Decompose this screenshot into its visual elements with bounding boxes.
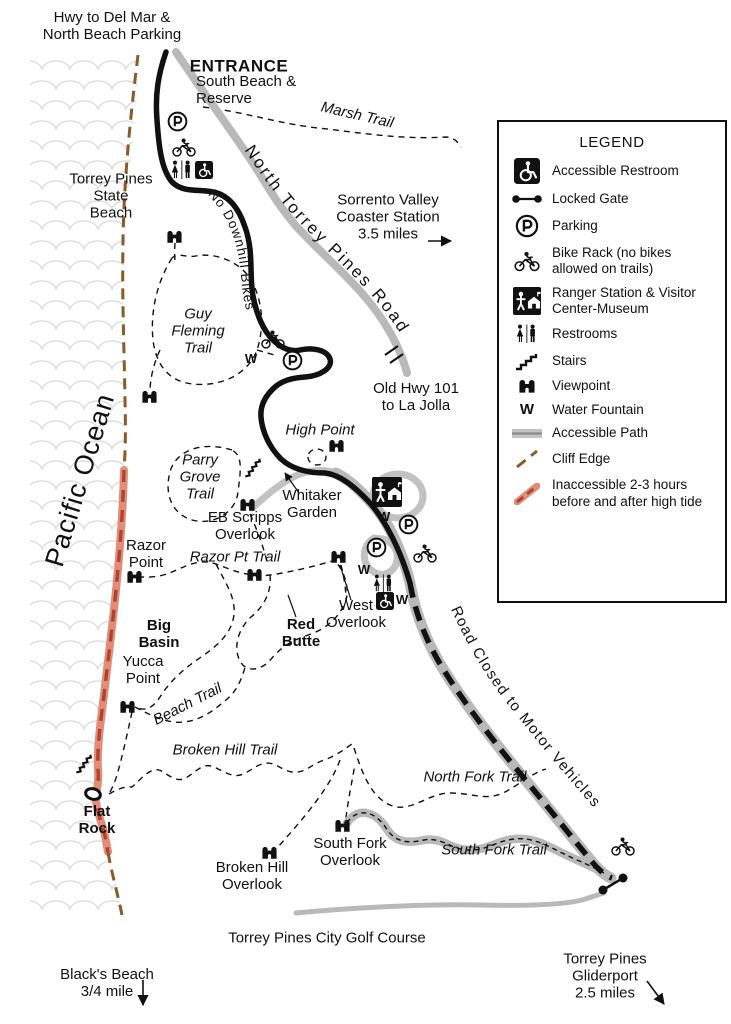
viewpoint-icon (142, 391, 156, 403)
bike-rack-icon (173, 138, 195, 155)
water-fountain-icon: W (378, 509, 391, 524)
legend-row-accessible-path: Accessible Path (509, 425, 719, 441)
label-hwy-del-mar: Hwy to Del Mar & North Beach Parking (43, 10, 181, 44)
stairs-icon (242, 459, 263, 477)
label-north-fork-trail: North Fork Trail (423, 770, 526, 787)
broken-hill-overlook-spur (278, 760, 340, 847)
water-fountain-icon: W (358, 562, 371, 577)
label-broken-hill-trail: Broken Hill Trail (173, 743, 278, 760)
label-broken-hill-overlook: Broken Hill Overlook (216, 860, 289, 894)
legend-label: Accessible Restroom (552, 163, 710, 179)
legend-row-bike-rack: Bike Rack (no bikes allowed on trails) (509, 245, 719, 277)
legend-label: Stairs (552, 353, 710, 369)
south-fork-overlook-spur (346, 764, 355, 818)
legend-row-restrooms: Restrooms (509, 324, 719, 344)
label-gliderport: Torrey Pines Gliderport 2.5 miles (542, 952, 668, 1003)
label-south-fork-overlook: South Fork Overlook (313, 836, 386, 870)
label-old-hwy-101: Old Hwy 101 to La Jolla (373, 381, 459, 415)
label-sorrento-valley: Sorrento Valley Coaster Station 3.5 mile… (336, 193, 439, 244)
label-west-overlook: West Overlook (326, 598, 386, 632)
viewpoint-icon-razor-point (127, 571, 141, 583)
legend-row-ranger-station: Ranger Station & Visitor Center-Museum (509, 285, 719, 317)
legend-row-tide: Inaccessible 2-3 hours before and after … (509, 477, 719, 509)
label-parry-grove-trail: Parry Grove Trail (180, 453, 221, 504)
legend-row-accessible-restroom: Accessible Restroom (509, 158, 719, 184)
viewpoint-icon (518, 378, 536, 394)
label-south-beach: South Beach & Reserve (196, 74, 296, 108)
legend-label: Locked Gate (552, 191, 710, 207)
legend-row-stairs: Stairs (509, 351, 719, 371)
label-flat-rock: Flat Rock (79, 804, 116, 838)
legend-row-cliff-edge: Cliff Edge (509, 448, 719, 470)
label-razor-pt-trail: Razor Pt Trail (190, 550, 281, 567)
viewpoint-icon-high-point (329, 440, 343, 452)
legend-label: Ranger Station & Visitor Center-Museum (552, 285, 710, 317)
guy-fleming-spur-east (257, 350, 278, 356)
legend-row-locked-gate: Locked Gate (509, 191, 719, 207)
legend-label: Viewpoint (552, 378, 710, 394)
label-whitaker-garden: Whitaker Garden (282, 488, 341, 522)
label-yucca-point: Yucca Point (123, 654, 164, 688)
legend-label: Cliff Edge (552, 451, 710, 467)
yucca-to-flat-rock (109, 712, 132, 794)
viewpoint-icon-west-overlook (331, 551, 345, 563)
accessible-restroom-icon (195, 161, 213, 179)
label-golf-course: Torrey Pines City Golf Course (228, 931, 426, 948)
viewpoint-icon (247, 569, 261, 581)
west-overlook-leader (340, 565, 351, 600)
label-red-butte: Red Butte (282, 617, 320, 651)
high-point-loop (308, 449, 326, 465)
label-south-fork-trail: South Fork Trail (441, 843, 547, 860)
ranger-station-icon (513, 287, 541, 315)
legend-label: Parking (552, 218, 710, 234)
legend-label: Inaccessible 2-3 hours before and after … (552, 477, 710, 509)
legend-label: Water Fountain (552, 402, 710, 418)
label-razor-point: Razor Point (126, 538, 166, 572)
legend-label: Accessible Path (552, 425, 710, 441)
bike-rack-icon (512, 250, 542, 273)
water-fountain-icon: W (509, 401, 545, 418)
legend-label: Bike Rack (no bikes allowed on trails) (552, 245, 710, 277)
label-high-point: High Point (285, 423, 354, 440)
parking-icon (515, 214, 539, 238)
ranger-station-icon (372, 477, 402, 507)
water-fountain-icon: W (396, 592, 409, 607)
park-road-closed-dashed (410, 583, 612, 878)
legend-label: Restrooms (552, 326, 710, 342)
viewpoint-icon (167, 231, 181, 243)
label-guy-fleming-trail: Guy Fleming Trail (171, 307, 224, 358)
red-butte-leader (288, 595, 296, 617)
restrooms-icon (515, 324, 539, 344)
viewpoint-icon-yucca-point (120, 701, 134, 713)
legend-row-parking: Parking (509, 214, 719, 238)
parking-icon (400, 516, 418, 534)
golf-course-road (296, 893, 604, 913)
accessible-path-icon (512, 428, 542, 439)
hiking-trails (109, 107, 546, 847)
viewpoint-icon-south-fork (335, 820, 349, 832)
label-big-basin: Big Basin (139, 618, 180, 652)
label-blacks-beach: Black's Beach 3/4 mile (60, 967, 154, 1001)
locked-gate-icon (511, 193, 543, 205)
trail-map: North Torrey Pines Road No Downhill Bike… (0, 0, 731, 1024)
legend-title: LEGEND (499, 134, 725, 151)
stairs-icon (515, 351, 539, 371)
guy-fleming-spur-south (150, 350, 160, 392)
legend-row-viewpoint: Viewpoint (509, 378, 719, 394)
label-eb-scripps-overlook: EB Scripps Overlook (208, 510, 282, 544)
accessible-restroom-icon (514, 158, 540, 184)
label-torrey-pines-state-beach: Torrey Pines State Beach (69, 172, 152, 223)
parking-icon (284, 352, 302, 370)
bike-rack-icon (612, 837, 634, 854)
legend-row-water-fountain: W Water Fountain (509, 401, 719, 418)
legend-box: LEGEND Accessible Restroom Locked Gate P… (497, 120, 727, 603)
restrooms-icon (172, 161, 190, 180)
water-fountain-icon: W (245, 351, 258, 366)
viewpoint-icon-broken-hill (262, 847, 276, 859)
cliff-edge-icon (514, 448, 540, 470)
parking-icon (368, 539, 386, 557)
bike-rack-icon (414, 544, 436, 561)
tide-icon (514, 483, 540, 505)
parking-icon (169, 113, 187, 131)
